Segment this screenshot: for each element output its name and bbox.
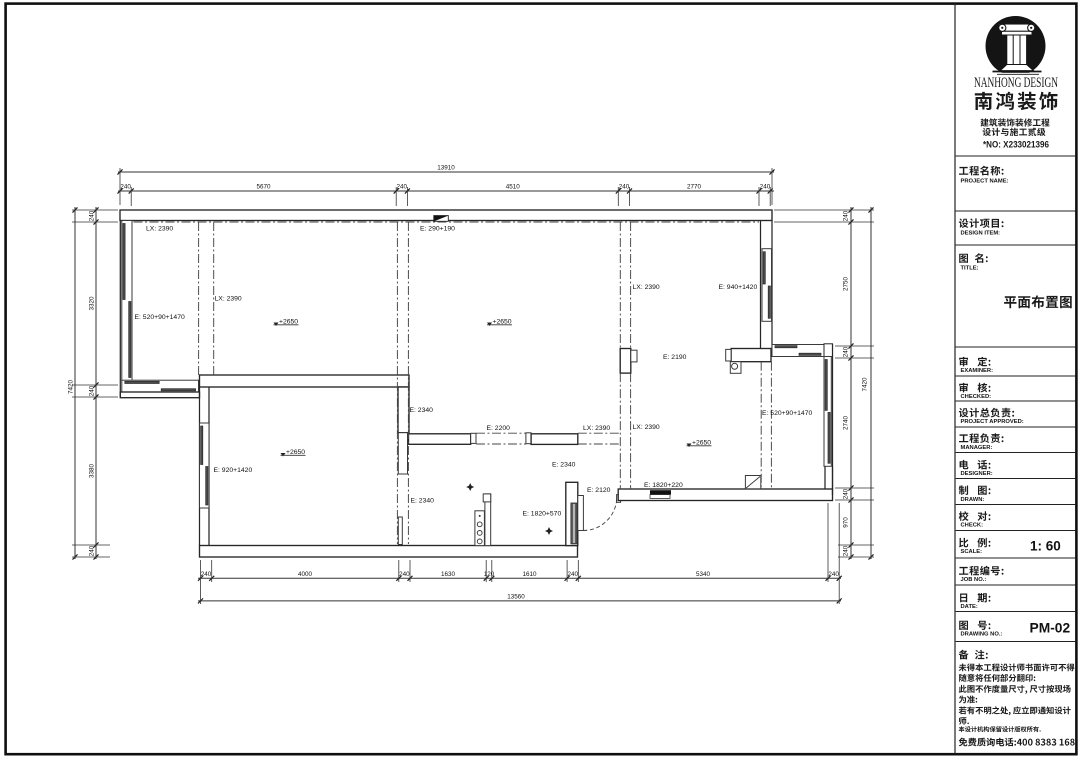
- svg-text:13560: 13560: [507, 593, 525, 600]
- svg-text:E: 2340: E: 2340: [411, 498, 435, 505]
- svg-text:5670: 5670: [256, 184, 271, 191]
- svg-text:970: 970: [843, 517, 850, 528]
- svg-text:240: 240: [201, 571, 212, 578]
- svg-text:240: 240: [120, 184, 131, 191]
- svg-text:240: 240: [89, 210, 96, 221]
- svg-text:240: 240: [89, 385, 96, 396]
- svg-text:JOB NO.:: JOB NO.:: [961, 577, 987, 583]
- svg-text:240: 240: [619, 184, 630, 191]
- svg-text:240: 240: [843, 545, 850, 556]
- svg-text:240: 240: [760, 184, 771, 191]
- svg-text:2770: 2770: [687, 184, 702, 191]
- svg-text:LX: 2390: LX: 2390: [633, 284, 660, 291]
- svg-text:LX: 2390: LX: 2390: [146, 226, 173, 233]
- svg-text:E: 2340: E: 2340: [552, 462, 576, 469]
- svg-text:4000: 4000: [298, 571, 313, 578]
- svg-text:240: 240: [843, 346, 850, 357]
- svg-text:PROJECT NAME:: PROJECT NAME:: [961, 179, 1009, 185]
- svg-text:1: 60: 1: 60: [1030, 539, 1061, 554]
- svg-text:E: 2190: E: 2190: [663, 354, 687, 361]
- svg-text:240: 240: [843, 488, 850, 499]
- svg-text:*NO: X233021396: *NO: X233021396: [983, 140, 1049, 150]
- svg-text:240: 240: [843, 210, 850, 221]
- svg-text:DESIGNER:: DESIGNER:: [961, 471, 993, 477]
- svg-text:3320: 3320: [89, 296, 96, 311]
- svg-text:PROJECT APPROVED:: PROJECT APPROVED:: [961, 419, 1024, 425]
- svg-text:240: 240: [397, 184, 408, 191]
- svg-text:7420: 7420: [862, 377, 869, 392]
- svg-text:MANAGER:: MANAGER:: [961, 445, 993, 451]
- svg-text:DESIGN ITEM:: DESIGN ITEM:: [961, 231, 1001, 237]
- svg-text:2740: 2740: [843, 416, 850, 431]
- svg-text:1610: 1610: [522, 571, 537, 578]
- svg-text:LX: 2390: LX: 2390: [583, 425, 610, 432]
- svg-text:NANHONG DESIGN: NANHONG DESIGN: [974, 74, 1058, 91]
- svg-text:E: 290+190: E: 290+190: [420, 226, 455, 233]
- svg-text:DRAWING NO.:: DRAWING NO.:: [961, 632, 1003, 638]
- svg-text:2750: 2750: [843, 277, 850, 292]
- svg-text:5340: 5340: [696, 571, 711, 578]
- svg-text:E: 2340: E: 2340: [410, 407, 434, 414]
- svg-text:LX: 2390: LX: 2390: [215, 296, 242, 303]
- svg-text:E: 520+90+1470: E: 520+90+1470: [135, 314, 185, 321]
- svg-text:E: 940+1420: E: 940+1420: [719, 284, 758, 291]
- svg-text:E: 1820+220: E: 1820+220: [644, 482, 683, 489]
- svg-text:240: 240: [89, 545, 96, 556]
- svg-text:SCALE:: SCALE:: [961, 549, 983, 555]
- svg-text:E: 2200: E: 2200: [487, 425, 511, 432]
- svg-text:DRAWN:: DRAWN:: [961, 497, 985, 503]
- svg-text:120: 120: [484, 571, 495, 578]
- svg-text:PM-02: PM-02: [1030, 621, 1071, 636]
- svg-text:LX: 2390: LX: 2390: [633, 424, 660, 431]
- svg-text:EXAMINER:: EXAMINER:: [961, 368, 994, 374]
- svg-text:240: 240: [567, 571, 578, 578]
- svg-text:1630: 1630: [441, 571, 456, 578]
- svg-text:240: 240: [828, 571, 839, 578]
- svg-text:CHECK:: CHECK:: [961, 523, 984, 529]
- svg-text:240: 240: [399, 571, 410, 578]
- svg-text:13910: 13910: [437, 164, 455, 171]
- svg-text:4510: 4510: [506, 184, 521, 191]
- svg-text:E: 2120: E: 2120: [587, 487, 611, 494]
- svg-text:CHECKED:: CHECKED:: [961, 394, 992, 400]
- svg-text:3380: 3380: [89, 464, 96, 479]
- svg-text:E: 1820+570: E: 1820+570: [523, 511, 562, 518]
- svg-text:DATE:: DATE:: [961, 604, 978, 610]
- svg-text:TITLE:: TITLE:: [961, 266, 979, 272]
- svg-text:7420: 7420: [68, 380, 75, 395]
- svg-text:E: 920+1420: E: 920+1420: [214, 467, 253, 474]
- svg-text:E: 520+90+1470: E: 520+90+1470: [762, 410, 812, 417]
